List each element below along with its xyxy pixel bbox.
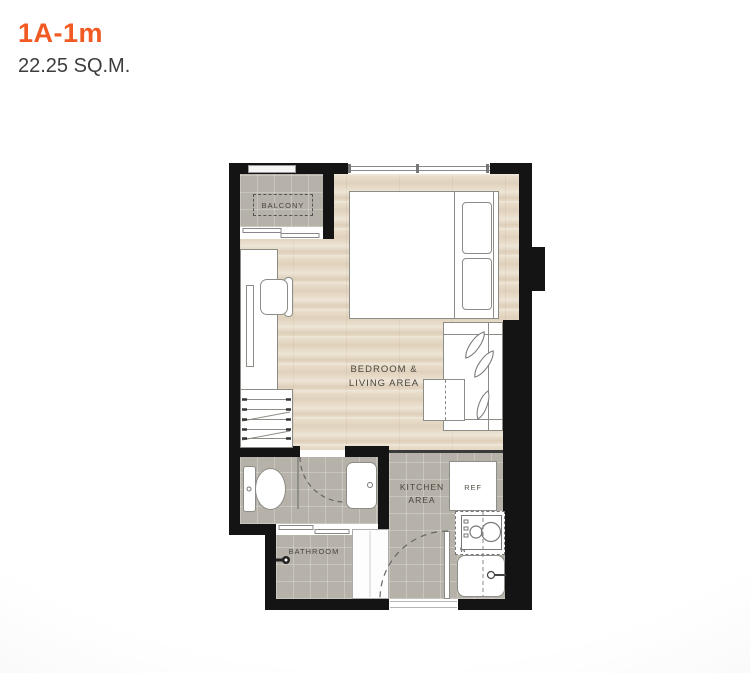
balcony-label-box: BALCONY — [253, 194, 313, 216]
pillow — [462, 258, 492, 310]
desk-shelf — [246, 285, 254, 367]
wall-lower-left — [265, 524, 276, 610]
window-top — [348, 163, 490, 174]
coffee-table-fold-line — [445, 380, 446, 420]
bed-pillow-divider — [454, 192, 455, 318]
bathroom-label: BATHROOM — [274, 547, 354, 556]
bathroom-sliding-door — [276, 524, 352, 535]
entrance-threshold — [389, 599, 458, 610]
refrigerator: REF — [449, 461, 497, 511]
floor-plan: REF BALCONY BEDROOM & LIVING AREA KITCHE… — [229, 163, 549, 615]
desk — [240, 249, 278, 391]
sofa-armrest-line — [444, 334, 502, 335]
wall-balcony-right — [323, 163, 334, 239]
unit-title: 1A-1m — [18, 18, 130, 49]
toilet-bowl — [255, 468, 286, 510]
refrigerator-label: REF — [450, 483, 496, 492]
wall-column-inner — [503, 320, 530, 511]
bath-partition — [297, 457, 299, 509]
balcony-sliding-door — [240, 227, 323, 239]
kitchen-sink — [457, 555, 505, 597]
bathroom-floor-lower — [276, 535, 352, 599]
bedroom-living-label: BEDROOM & LIVING AREA — [324, 363, 444, 391]
header: 1A-1m 22.25 SQ.M. — [18, 18, 130, 78]
unit-area: 22.25 SQ.M. — [18, 55, 130, 78]
balcony-railing — [248, 165, 296, 173]
wall-right-lower — [505, 511, 519, 610]
entrance-door-leaf — [444, 531, 450, 599]
kitchen-area-label: KITCHEN AREA — [391, 481, 453, 507]
bedroom-label-line2: LIVING AREA — [349, 378, 419, 389]
chair — [260, 279, 288, 315]
bed — [349, 191, 499, 319]
bed-headboard-line — [493, 192, 494, 318]
wall-bath-top-a — [240, 446, 300, 457]
service-shaft — [352, 529, 389, 599]
wall-bath-kitchen — [378, 446, 389, 529]
wall-left — [229, 163, 240, 535]
pillow — [462, 202, 492, 254]
wall-column-outer — [530, 247, 545, 291]
bedroom-label-line1: BEDROOM & — [350, 364, 417, 375]
bathroom-sink — [346, 462, 377, 509]
kitchen-label-line2: AREA — [408, 495, 435, 505]
kitchen-label-line1: KITCHEN — [400, 482, 444, 492]
washer-label: W — [457, 547, 469, 554]
balcony-label: BALCONY — [262, 201, 305, 210]
sofa-backrest-line — [488, 323, 489, 430]
wall-bottom-left — [265, 599, 389, 610]
